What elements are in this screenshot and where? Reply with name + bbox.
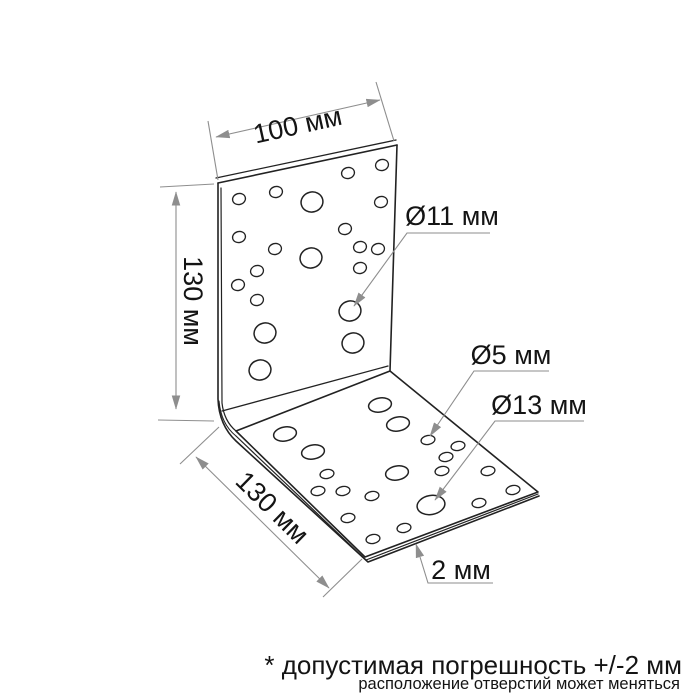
vertical-plate-small-holes: [352, 240, 367, 254]
ext-height-bottom: [158, 420, 214, 421]
labels-group: 100 мм130 мм130 ммØ11 ммØ5 ммØ13 мм2 мм*…: [178, 101, 682, 693]
vertical-plate-large-holes: [247, 357, 273, 382]
base-plate-large-holes: [384, 464, 409, 482]
leader-d13-label: Ø13 мм: [491, 390, 587, 420]
base-plate-large-holes: [300, 443, 325, 461]
base-plate-small-holes: [420, 434, 435, 445]
vertical-plate-small-holes: [373, 195, 388, 209]
note-holes: расположение отверстий может меняться: [358, 675, 680, 693]
base-plate-small-holes: [340, 512, 355, 523]
base-plate-small-holes: [438, 451, 453, 462]
vertical-plate-small-holes: [340, 166, 355, 180]
ext-depth-bottom: [323, 559, 362, 597]
vertical-plate-large-holes: [252, 320, 278, 345]
ext-height-top: [160, 184, 214, 187]
base-plate-d13-hole: [416, 493, 447, 517]
base-plate-small-holes: [365, 533, 380, 544]
vertical-plate-small-holes: [230, 278, 245, 292]
plate-left-inner: [221, 188, 236, 431]
leader-d11-label: Ø11 мм: [405, 201, 499, 231]
leader-thickness-label: 2 мм: [431, 555, 491, 585]
vertical-plate-large-holes: [337, 298, 363, 323]
plate-right-edge: [390, 145, 397, 371]
base-plate-small-holes: [505, 484, 520, 495]
dim-height-label: 130 мм: [178, 256, 208, 346]
base-plate-large-holes: [367, 396, 392, 414]
base-plate-small-holes: [396, 522, 411, 533]
base-plate-small-holes: [480, 465, 495, 476]
vertical-plate-small-holes: [231, 230, 246, 244]
base-plate-small-holes: [310, 485, 325, 496]
vertical-plate-small-holes: [268, 185, 283, 199]
vertical-plate-small-holes: [370, 242, 385, 256]
base-plate-small-holes: [434, 465, 449, 476]
dim-depth-label: 130 мм: [230, 466, 315, 550]
ext-width-right: [376, 82, 394, 141]
vertical-plate-large-holes: [299, 189, 325, 214]
base-plate-small-holes: [364, 490, 379, 501]
base-front-right-mid: [366, 494, 538, 560]
vertical-plate-small-holes: [267, 242, 282, 256]
vertical-plate-small-holes: [374, 158, 389, 172]
base-plate-small-holes: [471, 497, 486, 508]
ext-depth-top: [180, 427, 219, 464]
leader-d5-label: Ø5 мм: [471, 340, 552, 370]
base-plate-large-holes: [272, 425, 297, 443]
vertical-plate-small-holes: [249, 293, 264, 307]
vertical-plate-small-holes: [352, 261, 367, 275]
vertical-plate-large-holes: [340, 330, 366, 355]
product-diagram-canvas: 100 мм130 мм130 ммØ11 ммØ5 ммØ13 мм2 мм*…: [0, 0, 700, 700]
base-plate-small-holes: [319, 468, 334, 479]
base-plate-large-holes: [385, 415, 410, 433]
angle-bracket-technical-drawing: 100 мм130 мм130 ммØ11 ммØ5 ммØ13 мм2 мм*…: [0, 0, 700, 700]
base-plate-small-holes: [450, 440, 465, 451]
plate-top-edge: [218, 145, 397, 183]
plate-top-thickness: [216, 140, 396, 178]
vertical-plate-small-holes: [337, 222, 352, 236]
base-plate-small-holes: [335, 485, 350, 496]
vertical-plate-small-holes: [249, 264, 264, 278]
vertical-plate-small-holes: [231, 192, 246, 206]
dim-width-label: 100 мм: [251, 101, 345, 150]
vertical-plate-large-holes: [298, 245, 324, 270]
ext-width-left: [208, 121, 218, 180]
